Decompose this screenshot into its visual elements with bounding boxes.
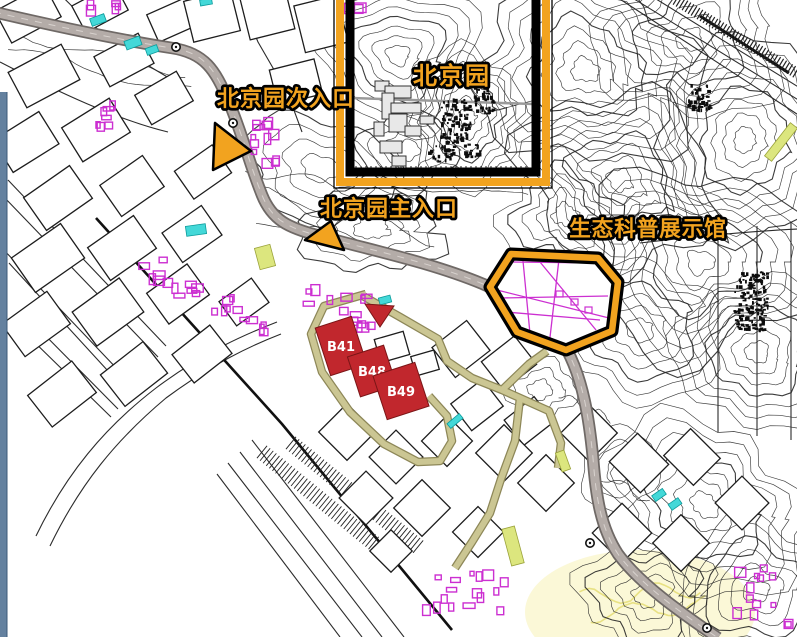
building-b41-label: B41 [327,340,355,355]
site-plan-map: B41 B48 B49 北京园 北京园次入口 北京园主入口 生态科普展示馆 [0,0,797,637]
secondary-entrance-label: 北京园次入口 [217,86,355,112]
main-entrance-label: 北京园主入口 [320,196,458,222]
beijing-garden-label: 北京园 [413,62,491,90]
building-b49-label: B49 [387,385,415,400]
eco-hall-label: 生态科普展示馆 [569,216,727,242]
page-edge-strip [0,92,8,637]
site-plan-canvas: B41 B48 B49 北京园 北京园次入口 北京园主入口 生态科普展示馆 [0,0,797,637]
